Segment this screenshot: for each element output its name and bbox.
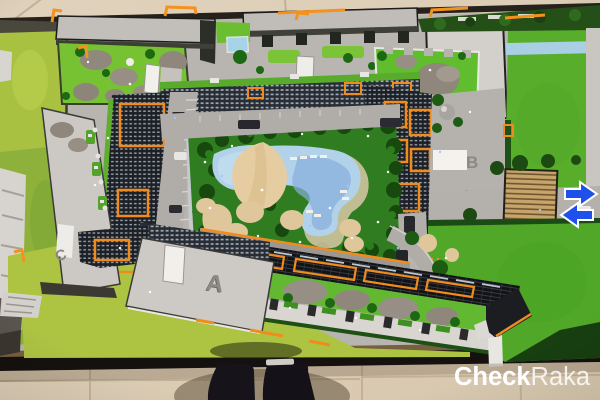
- svg-text:CheckRaka: CheckRaka: [454, 363, 591, 391]
